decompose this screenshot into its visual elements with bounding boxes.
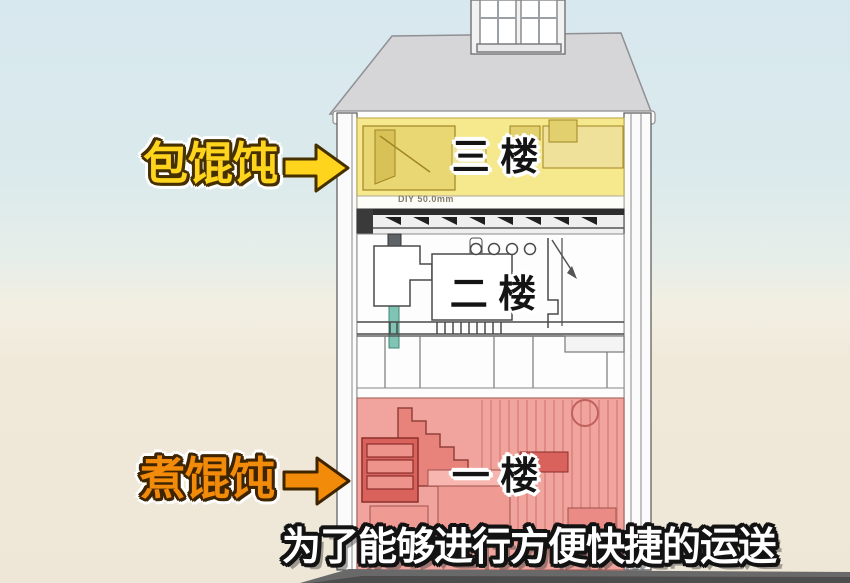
floor2-slab: [357, 388, 624, 398]
floor2-label: 二 楼: [423, 276, 563, 314]
subtitle-caption: 为了能够进行方便快捷的运送: [282, 528, 776, 567]
floor1-drawers: [367, 444, 413, 489]
wrap-wonton-label: 包馄饨: [143, 141, 278, 186]
cook-wonton-label: 煮馄饨: [140, 456, 275, 501]
floor3-stair-shape: [375, 130, 395, 184]
roof-window: [471, 0, 565, 54]
roof-window-sill: [477, 44, 561, 52]
left-wall: [337, 113, 357, 570]
second-floor-room: [357, 234, 624, 398]
video-frame: 包馄饨 煮馄饨 三 楼 二 楼 一 楼 DIY 50.0mm 为了能够进行方便快…: [0, 0, 850, 583]
ceiling-joist-band: [357, 209, 624, 234]
floor1-label: 一 楼: [425, 458, 565, 496]
dimension-note: DIY 50.0mm: [398, 194, 454, 204]
base-pedestal-dark-edge: [310, 576, 850, 583]
right-wall: [624, 113, 651, 570]
floor3-label: 三 楼: [425, 139, 565, 177]
